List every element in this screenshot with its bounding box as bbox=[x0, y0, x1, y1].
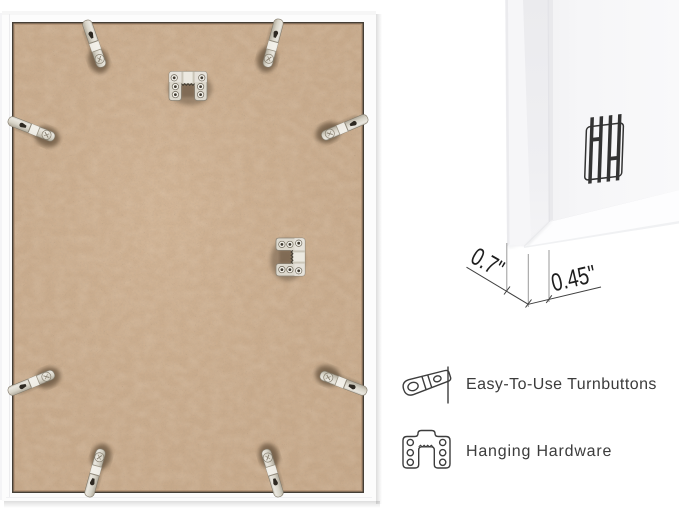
svg-text:Easy-To-Use Turnbuttons: Easy-To-Use Turnbuttons bbox=[466, 376, 657, 393]
svg-text:Hanging Hardware: Hanging Hardware bbox=[466, 443, 612, 460]
